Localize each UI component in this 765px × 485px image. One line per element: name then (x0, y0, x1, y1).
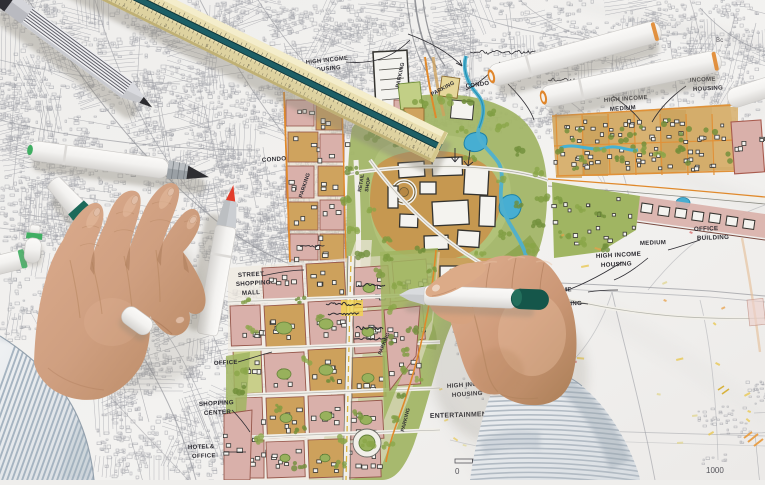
svg-text:OFFICE: OFFICE (192, 453, 216, 460)
svg-text:CENTER: CENTER (204, 409, 232, 417)
svg-text:1000: 1000 (706, 466, 724, 475)
svg-text:OFFICE: OFFICE (694, 225, 719, 233)
svg-text:HOTEL&: HOTEL& (188, 444, 215, 451)
svg-text:MEDIUM: MEDIUM (640, 240, 666, 247)
svg-text:STREET: STREET (238, 271, 265, 279)
svg-text:BUILDING: BUILDING (697, 234, 730, 242)
svg-text:MALL: MALL (242, 289, 261, 297)
svg-text:Bc: Bc (716, 38, 723, 44)
svg-text:0: 0 (455, 467, 460, 476)
svg-text:OFFICE: OFFICE (214, 360, 238, 367)
